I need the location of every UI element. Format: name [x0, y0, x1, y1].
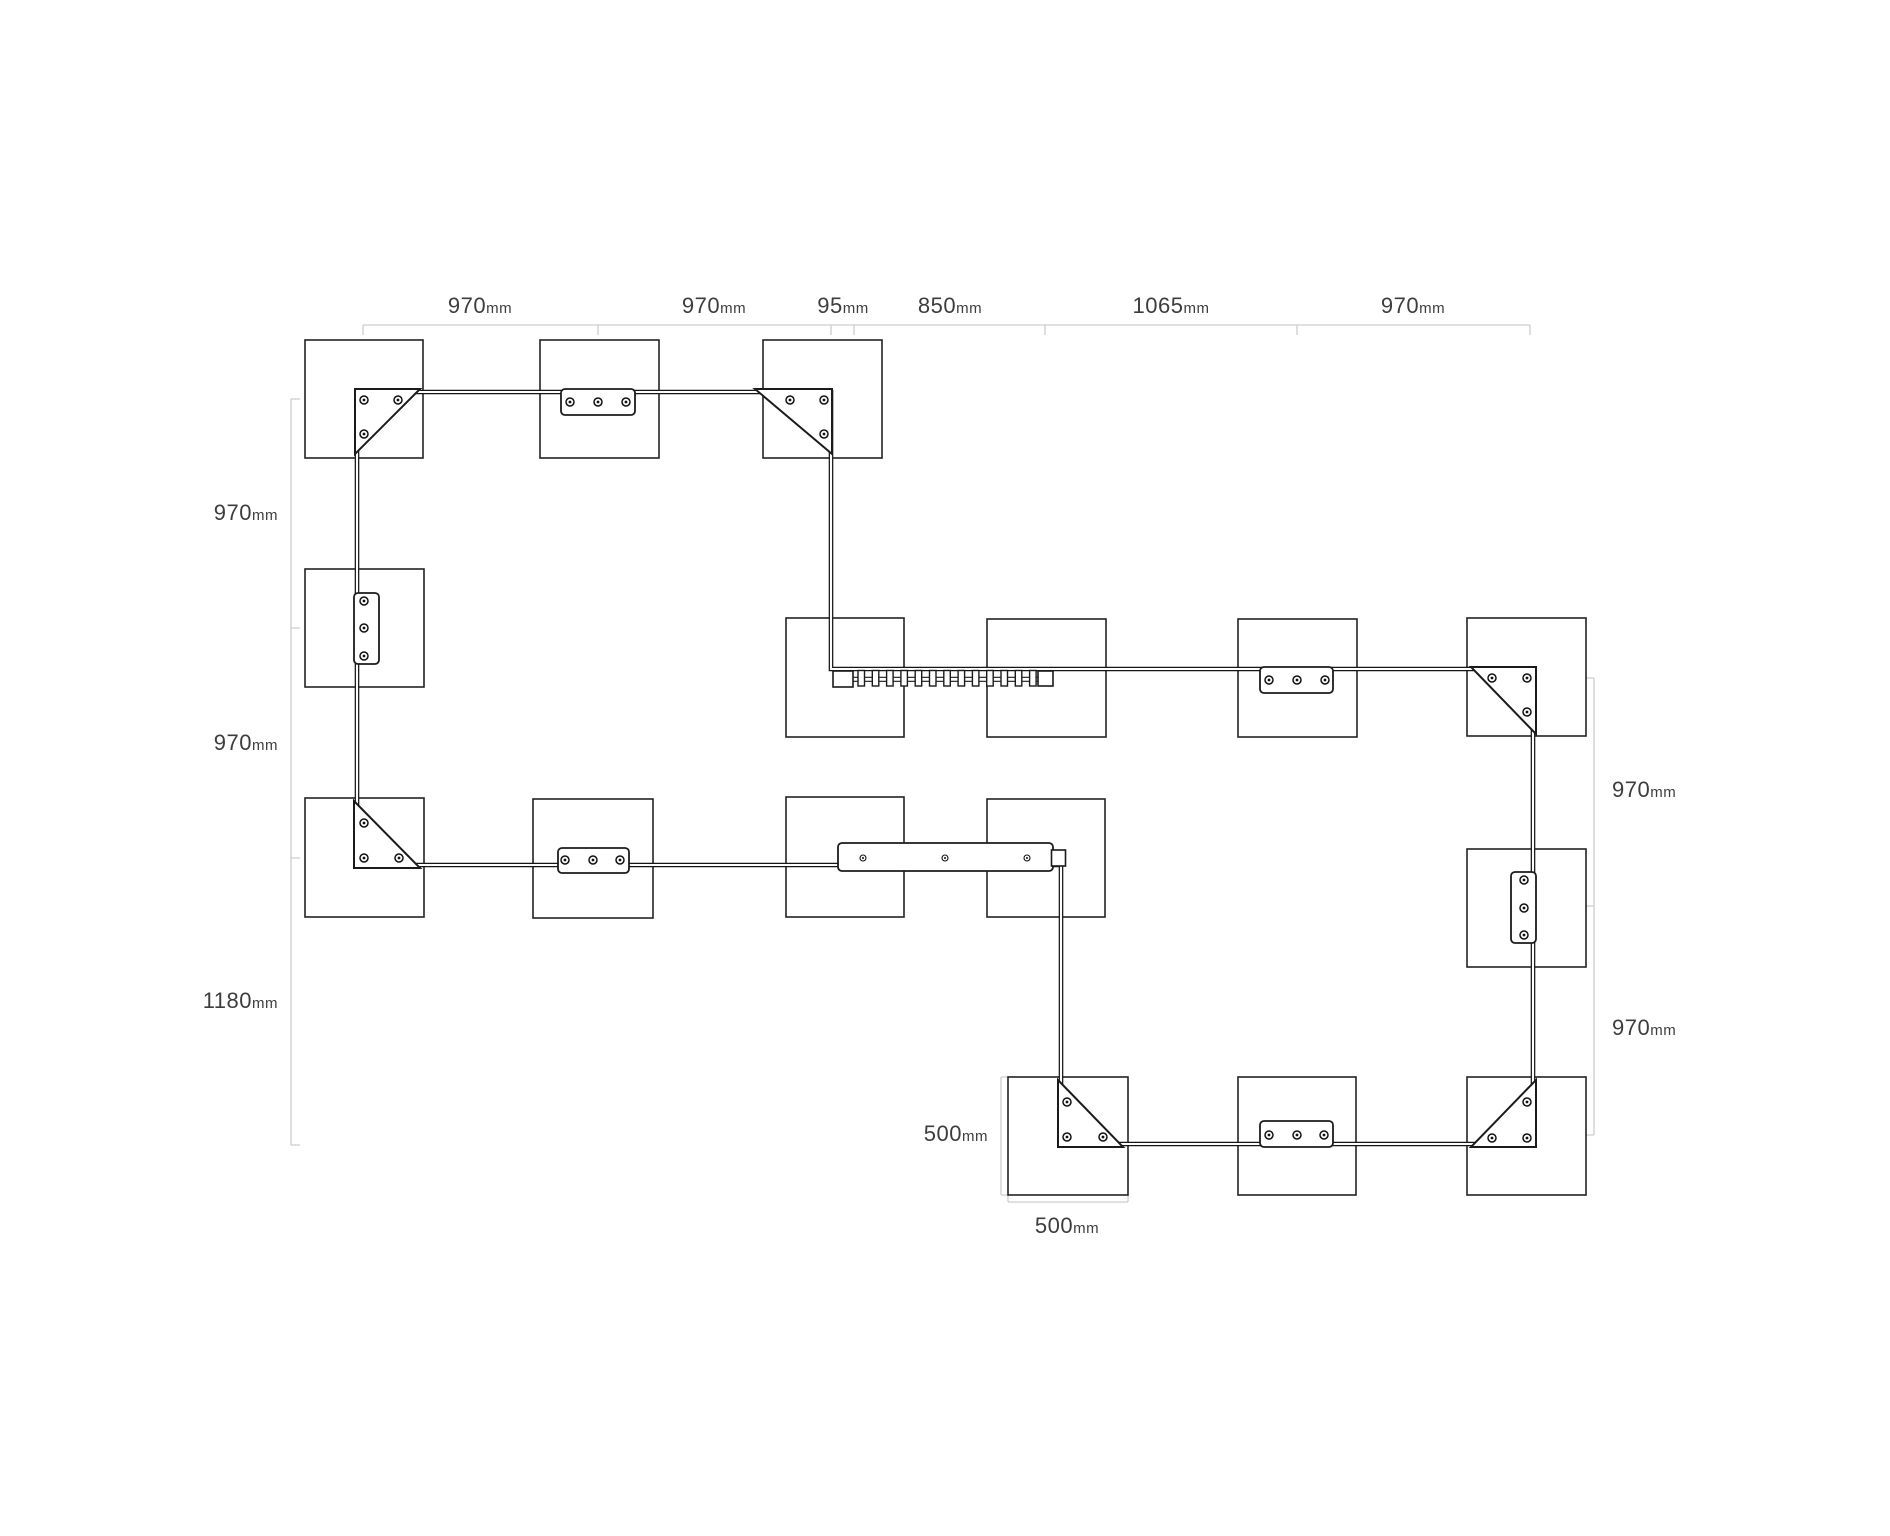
dim-ticks-left: [291, 399, 300, 1145]
dim-value: 500: [1035, 1213, 1073, 1238]
dim-unit: mm: [486, 300, 512, 317]
dim-label-top-6: 970mm: [1381, 293, 1445, 318]
dim-label-top-5: 1065mm: [1133, 293, 1210, 318]
straight-connector-plates: [354, 389, 1536, 1147]
dim-label-top-4: 850mm: [918, 293, 982, 318]
connector-plate: [1511, 872, 1536, 943]
dim-unit: mm: [252, 995, 278, 1012]
dim-unit: mm: [962, 1128, 988, 1145]
elbow-pad: [1052, 850, 1066, 866]
dim-value: 970: [448, 293, 486, 318]
corner-brackets: [354, 389, 1536, 1147]
dim-unit: mm: [1650, 1022, 1676, 1039]
hinge-end-pad-left: [833, 671, 853, 687]
panel-walls: [357, 392, 1533, 1144]
connector-plate: [1260, 667, 1333, 693]
dim-label-left-3: 1180mm: [203, 988, 278, 1013]
dim-unit: mm: [956, 300, 982, 317]
dim-ticks-top: [363, 325, 1530, 335]
dim-unit: mm: [252, 507, 278, 524]
dim-value: 970: [682, 293, 720, 318]
dim-value: 970: [214, 730, 252, 755]
wall-outline-outer: [357, 392, 1533, 1144]
dim-label-left-2: 970mm: [214, 730, 278, 755]
long-joining-plate: [838, 843, 1053, 871]
dim-unit: mm: [1419, 300, 1445, 317]
dim-value: 970: [1612, 1015, 1650, 1040]
dim-value: 970: [214, 500, 252, 525]
dim-label-pad-height: 500mm: [924, 1121, 988, 1146]
dim-value: 970: [1381, 293, 1419, 318]
dim-label-left-1: 970mm: [214, 500, 278, 525]
base-pads: [305, 340, 1586, 1195]
dimension-lines: [291, 325, 1594, 1202]
wall-outline-inner: [357, 392, 1533, 1144]
plan-canvas: 970mm 970mm 95mm 850mm 1065mm 970mm 970m…: [0, 0, 1890, 1536]
dim-unit: mm: [720, 300, 746, 317]
dim-unit: mm: [1650, 784, 1676, 801]
dim-unit: mm: [252, 737, 278, 754]
dim-label-top-1: 970mm: [448, 293, 512, 318]
dim-value: 500: [924, 1121, 962, 1146]
hinge-end-pad-right: [1038, 671, 1053, 686]
dim-unit: mm: [1073, 1220, 1099, 1237]
dim-value: 1180: [203, 988, 252, 1013]
dim-label-top-3: 95mm: [817, 293, 868, 318]
dim-value: 970: [1612, 777, 1650, 802]
dim-unit: mm: [843, 300, 869, 317]
floor-plan-drawing: 970mm 970mm 95mm 850mm 1065mm 970mm 970m…: [0, 0, 1890, 1536]
connector-plate: [561, 389, 635, 415]
connector-plate: [354, 593, 379, 664]
dim-value: 850: [918, 293, 956, 318]
connector-plate: [1260, 1121, 1333, 1147]
dim-value: 1065: [1133, 293, 1184, 318]
dim-label-pad-width: 500mm: [1035, 1213, 1099, 1238]
connector-plate: [558, 848, 629, 873]
dim-value: 95: [817, 293, 842, 318]
dim-label-right-2: 970mm: [1612, 1015, 1676, 1040]
dim-label-top-2: 970mm: [682, 293, 746, 318]
dim-label-right-1: 970mm: [1612, 777, 1676, 802]
dim-unit: mm: [1183, 300, 1209, 317]
